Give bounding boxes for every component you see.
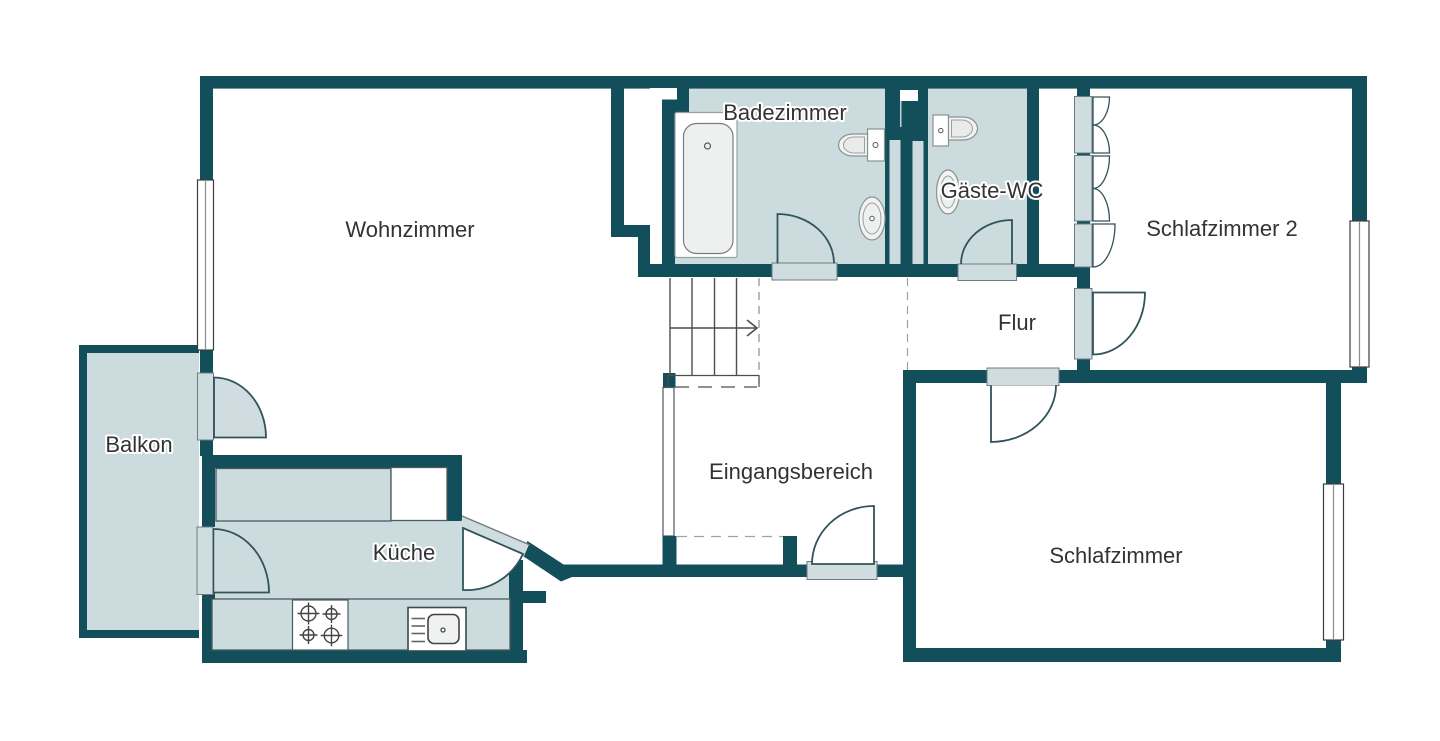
svg-text:Wohnzimmer: Wohnzimmer: [345, 217, 474, 242]
svg-text:Badezimmer: Badezimmer: [723, 100, 846, 125]
svg-text:Gäste-WC: Gäste-WC: [941, 178, 1044, 203]
svg-text:Flur: Flur: [998, 310, 1036, 335]
svg-text:Eingangsbereich: Eingangsbereich: [709, 459, 873, 484]
svg-text:Balkon: Balkon: [105, 432, 172, 457]
svg-text:Schlafzimmer 2: Schlafzimmer 2: [1146, 216, 1298, 241]
svg-text:Küche: Küche: [373, 540, 435, 565]
svg-text:Schlafzimmer: Schlafzimmer: [1049, 543, 1182, 568]
